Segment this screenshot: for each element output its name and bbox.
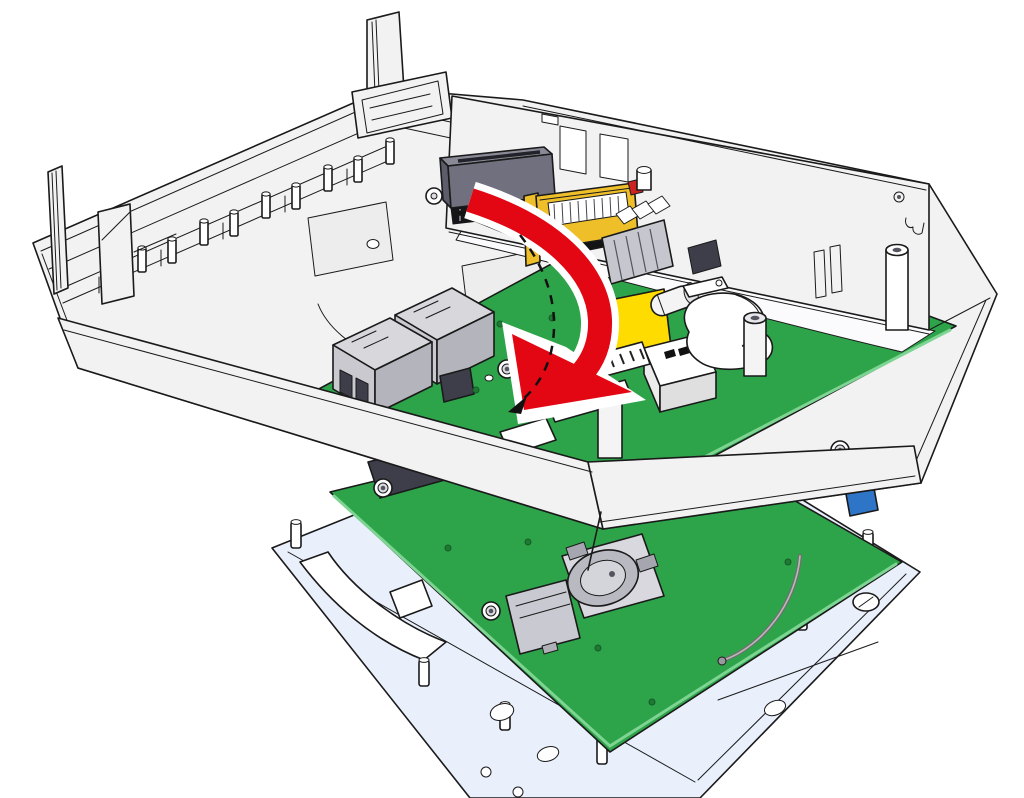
- pcb-hole: [485, 375, 493, 381]
- via: [525, 539, 531, 545]
- frame-pin: [419, 658, 429, 686]
- frame-hole: [481, 767, 491, 777]
- frame-hole: [513, 787, 523, 797]
- via: [445, 545, 451, 551]
- pcb-standoff: [744, 313, 766, 377]
- via: [473, 387, 479, 393]
- guide-stud: [814, 250, 826, 298]
- wall-cutout: [560, 126, 586, 174]
- wall-hole: [897, 195, 901, 199]
- corner-standoff: [886, 245, 908, 331]
- mounting-screw: [482, 602, 500, 620]
- screw-boss: [637, 167, 651, 191]
- assembly-illustration: Assembly step diagram: the controller ci…: [0, 0, 1024, 798]
- assembly-figure: Assembly step diagram: the controller ci…: [0, 0, 1024, 798]
- via: [785, 559, 791, 565]
- guide-stud: [830, 245, 842, 293]
- housing-shell: [33, 12, 997, 570]
- wall-cutout: [600, 134, 628, 182]
- frame-pin: [291, 520, 301, 548]
- via: [497, 321, 503, 327]
- floor-hole: [367, 240, 379, 249]
- via: [649, 699, 655, 705]
- mounting-screw: [374, 479, 392, 497]
- via: [595, 645, 601, 651]
- slotted-screw: [853, 593, 879, 611]
